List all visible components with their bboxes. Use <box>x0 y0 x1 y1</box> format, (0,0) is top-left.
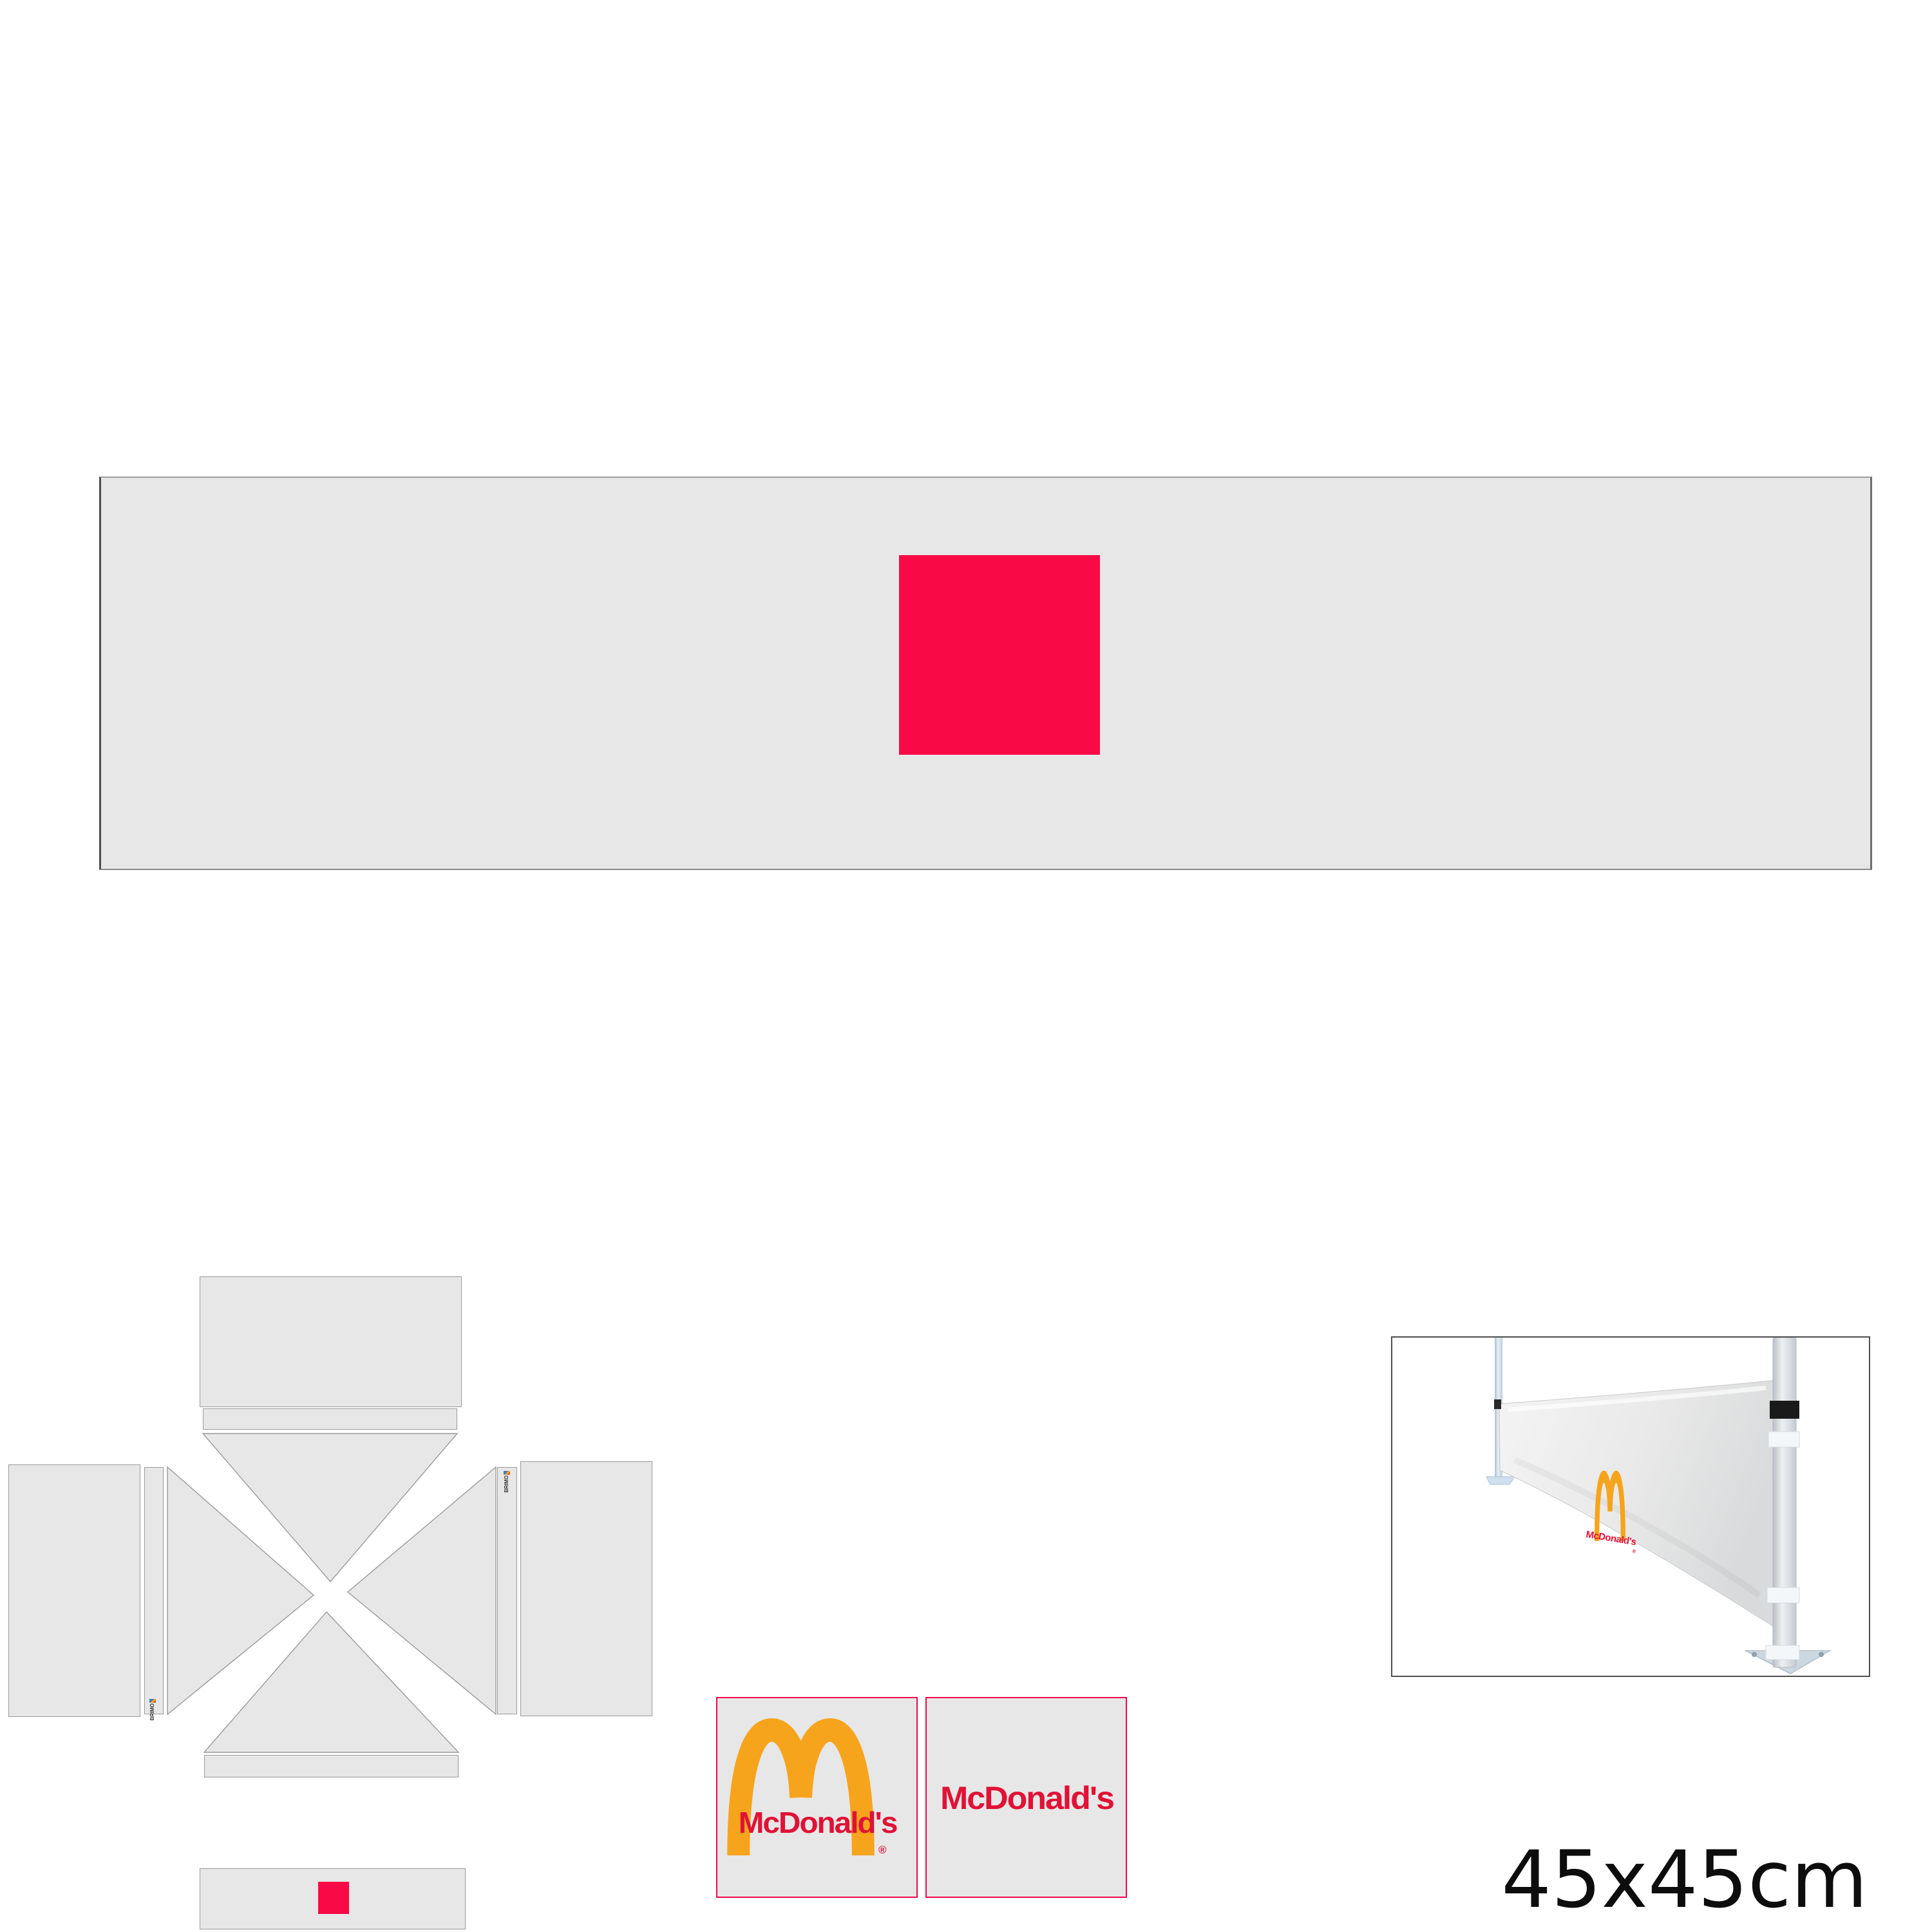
registered-mark: ® <box>878 1844 887 1857</box>
banner-print-area-square <box>899 555 1100 755</box>
zipper-tag-right-icon: BRIMO <box>501 1471 513 1493</box>
velcro-strap-white <box>1766 1645 1799 1660</box>
tent-leg-far-foot <box>1486 1477 1515 1484</box>
halfwall-banner-fabric <box>1499 1380 1777 1629</box>
halfwall-strip-template <box>200 1868 466 1929</box>
zipper-tag-left-icon: BRIMO <box>147 1699 158 1721</box>
canopy-right-edge-strip <box>497 1467 517 1714</box>
base-plate-hole <box>1819 1652 1824 1657</box>
zipper-tag-symbol-icon <box>504 1471 510 1475</box>
velcro-strap-white <box>1767 1587 1799 1603</box>
product-photo: McDonald's ® <box>1391 1336 1870 1677</box>
mcdonalds-wordmark: McDonald's <box>925 1779 1128 1817</box>
canopy-top-wall-panel <box>200 1276 462 1407</box>
canopy-left-edge-strip <box>144 1467 164 1714</box>
tent-leg-near <box>1773 1338 1796 1667</box>
mcdonalds-wordmark: McDonald's <box>716 1805 919 1840</box>
velcro-strap-black <box>1770 1401 1799 1419</box>
canopy-bottom-valance-strip <box>204 1755 459 1777</box>
banner-panel-template <box>99 477 1872 870</box>
registered-mark: ® <box>1632 1548 1636 1555</box>
print-size-label: 45x45cm <box>1481 1834 1868 1926</box>
canopy-left-wall-panel <box>8 1464 140 1717</box>
base-plate-hole <box>1752 1652 1757 1657</box>
logo-swatch-wordmark: McDonald's <box>925 1697 1127 1898</box>
zipper-tag-symbol-icon <box>149 1699 156 1703</box>
zipper-tag-brand-text: BRIMO <box>504 1475 509 1493</box>
logo-swatch-full: McDonald's ® <box>716 1697 918 1898</box>
velcro-strap-white <box>1768 1432 1799 1447</box>
zipper-tag-brand-text: BRIMO <box>150 1703 155 1721</box>
banner-clamp <box>1494 1399 1501 1409</box>
canopy-right-wall-panel <box>520 1461 652 1716</box>
canopy-top-valance-strip <box>203 1408 457 1430</box>
halfwall-photo-graphic: McDonald's ® <box>1392 1338 1869 1676</box>
halfwall-print-area-square <box>318 1882 349 1914</box>
